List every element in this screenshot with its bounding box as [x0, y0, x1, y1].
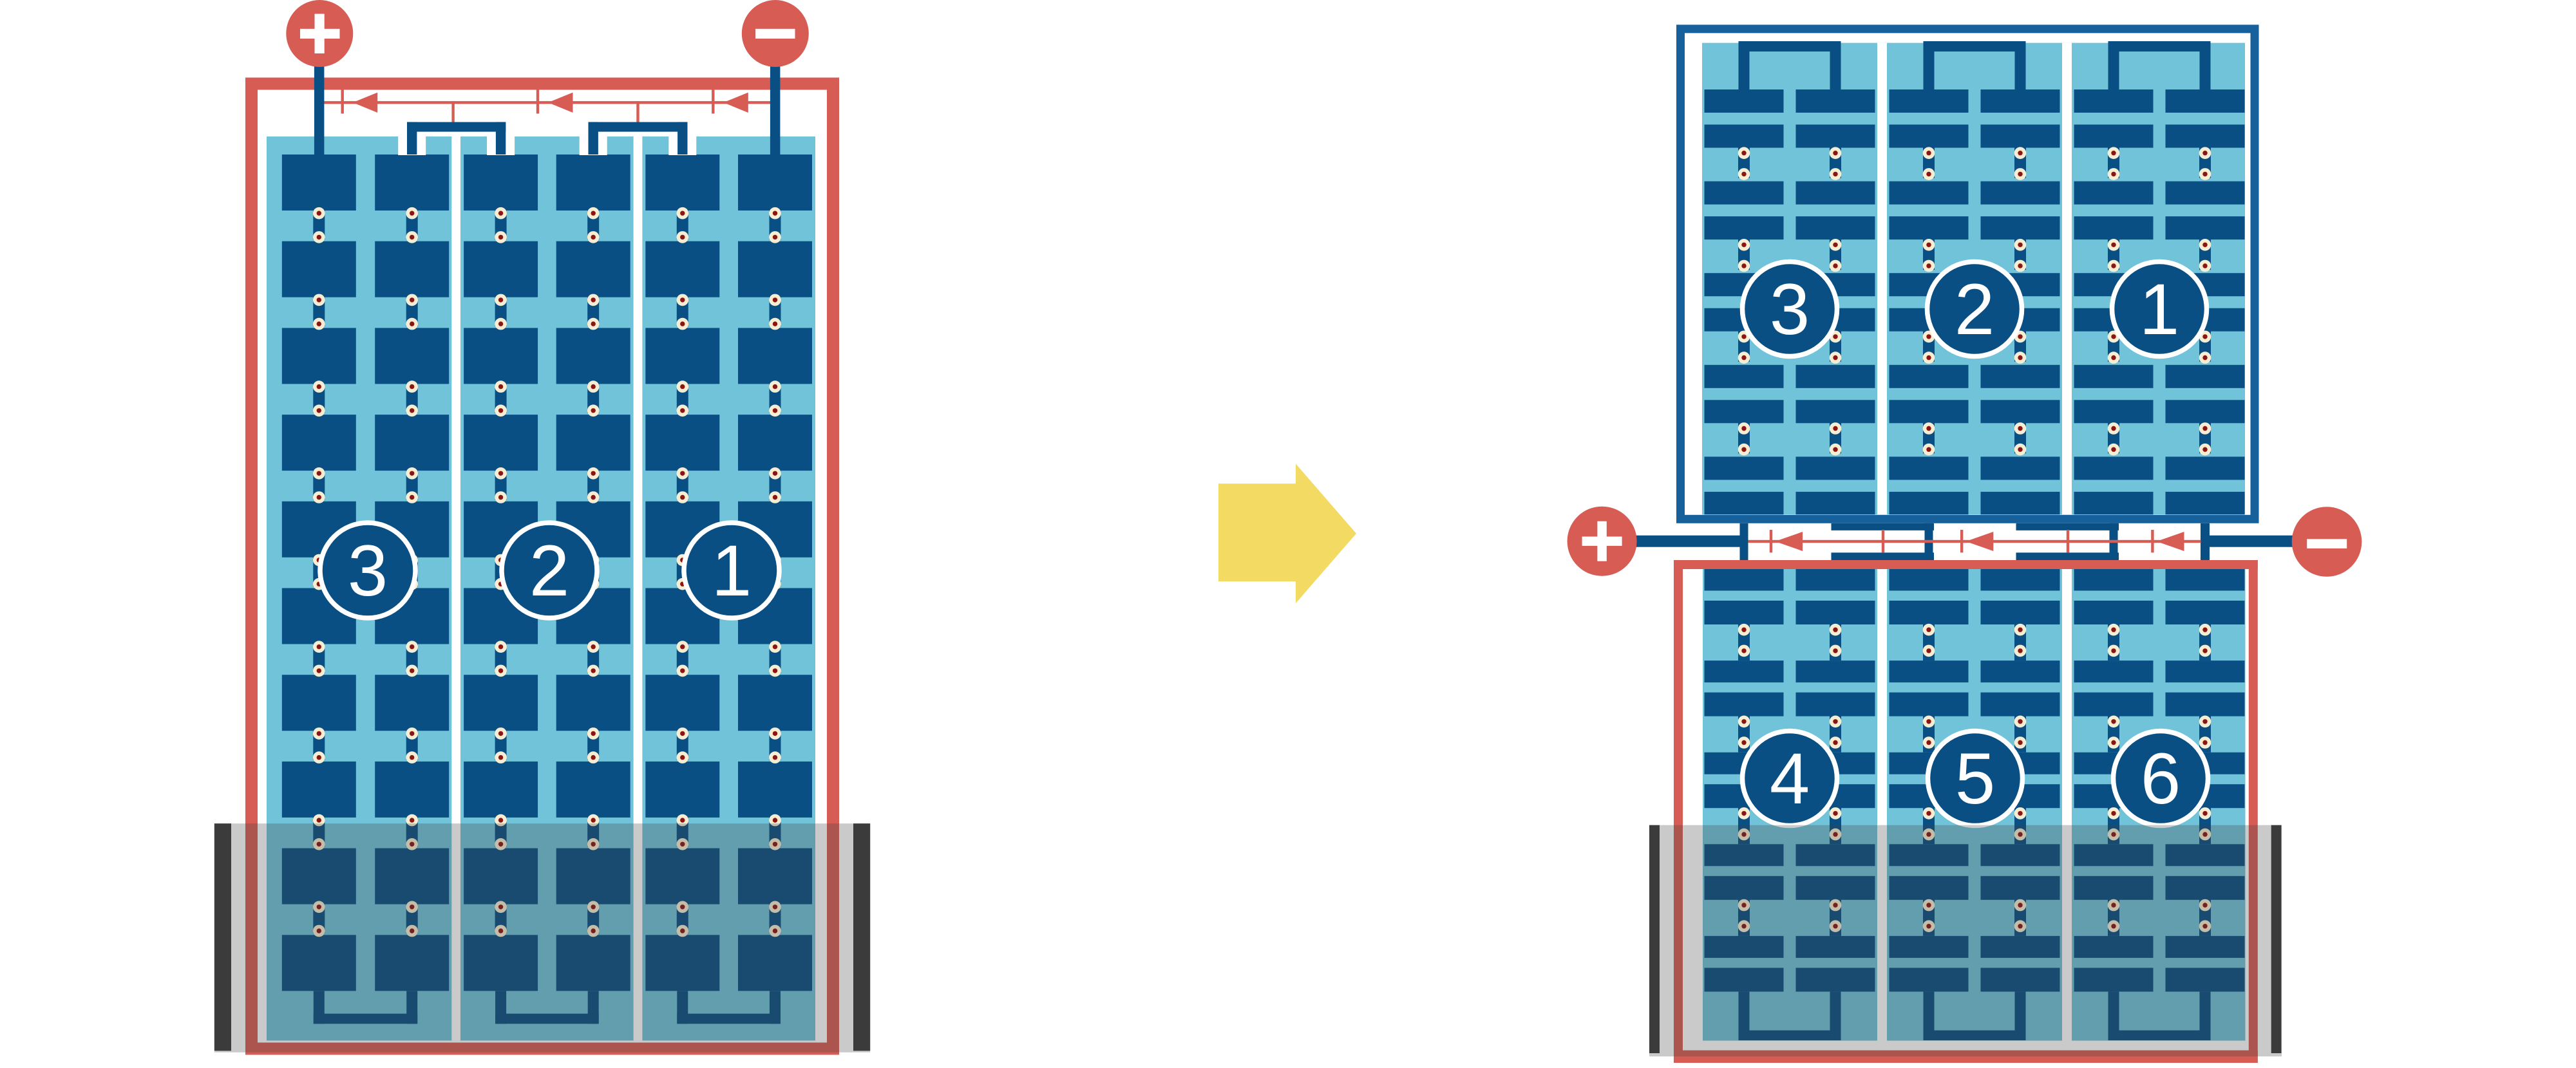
svg-text:5: 5	[1955, 738, 1995, 819]
svg-text:6: 6	[2141, 738, 2181, 819]
svg-text:1: 1	[712, 530, 752, 611]
svg-text:2: 2	[529, 530, 569, 611]
svg-text:3: 3	[348, 530, 388, 611]
svg-text:4: 4	[1770, 738, 1810, 819]
svg-text:3: 3	[1770, 269, 1810, 350]
svg-text:1: 1	[2139, 269, 2179, 350]
svg-text:2: 2	[1955, 269, 1994, 350]
